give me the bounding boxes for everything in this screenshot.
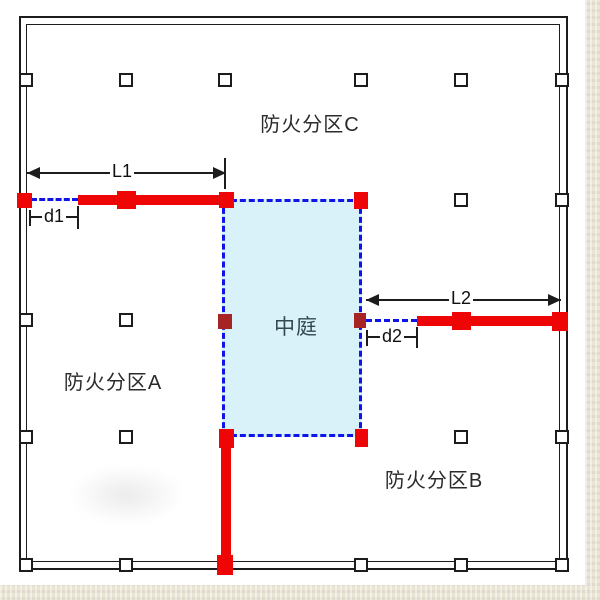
compartment-boundary-dashed-1 bbox=[366, 319, 417, 322]
column-marker bbox=[454, 73, 468, 87]
fire-shutter-node bbox=[17, 193, 32, 208]
column-marker bbox=[454, 193, 468, 207]
dimension-d1-tick-1 bbox=[77, 206, 79, 229]
fire-shutter-node bbox=[354, 192, 368, 209]
fire-shutter-bar-2 bbox=[221, 444, 231, 562]
column-marker bbox=[119, 73, 133, 87]
column-marker bbox=[555, 73, 569, 87]
dimension-l1-arrow-left bbox=[27, 167, 40, 179]
column-marker bbox=[354, 73, 368, 87]
fire-shutter-node bbox=[355, 429, 368, 447]
column-marker bbox=[19, 73, 33, 87]
fire-shutter-node bbox=[219, 192, 234, 208]
atrium-label: 中庭 bbox=[221, 311, 371, 341]
column-marker bbox=[555, 558, 569, 572]
dimension-d2-label: d2 bbox=[380, 327, 404, 347]
fire-shutter-bar-1 bbox=[417, 316, 568, 326]
zone-b-label: 防火分区B bbox=[359, 464, 509, 493]
column-marker bbox=[454, 558, 468, 572]
fire-shutter-node bbox=[452, 312, 471, 330]
column-marker bbox=[555, 430, 569, 444]
dimension-l1-label: L1 bbox=[110, 162, 134, 182]
zone-a-label: 防火分区A bbox=[38, 366, 188, 395]
dimension-l2-arrow-right bbox=[548, 294, 561, 306]
dimension-l1-tick-0 bbox=[224, 158, 226, 189]
dimension-l2-arrow-left bbox=[366, 294, 379, 306]
column-marker bbox=[19, 313, 33, 327]
fire-shutter-node bbox=[219, 429, 234, 448]
dimension-l2-label: L2 bbox=[449, 289, 473, 309]
column-marker bbox=[218, 73, 232, 87]
dimension-d1-label: d1 bbox=[42, 207, 66, 227]
fire-shutter-node bbox=[552, 312, 568, 331]
dimension-d2-tick-1 bbox=[416, 327, 418, 348]
column-marker bbox=[19, 430, 33, 444]
fire-shutter-node bbox=[217, 555, 233, 575]
zone-c-label: 防火分区C bbox=[235, 108, 385, 137]
column-marker bbox=[119, 558, 133, 572]
column-marker bbox=[119, 430, 133, 444]
fire-shutter-node bbox=[117, 191, 136, 209]
column-marker bbox=[19, 558, 33, 572]
column-marker bbox=[354, 558, 368, 572]
column-marker bbox=[555, 193, 569, 207]
fire-shutter-bar-0 bbox=[78, 195, 230, 205]
column-marker bbox=[119, 313, 133, 327]
column-marker bbox=[454, 430, 468, 444]
compartment-boundary-dashed-0 bbox=[31, 198, 78, 201]
dimension-d1-tick-0 bbox=[29, 210, 31, 226]
floor-plan-diagram: L1L2d1d2 防火分区C 防火分区A 防火分区B 中庭 bbox=[0, 0, 600, 600]
